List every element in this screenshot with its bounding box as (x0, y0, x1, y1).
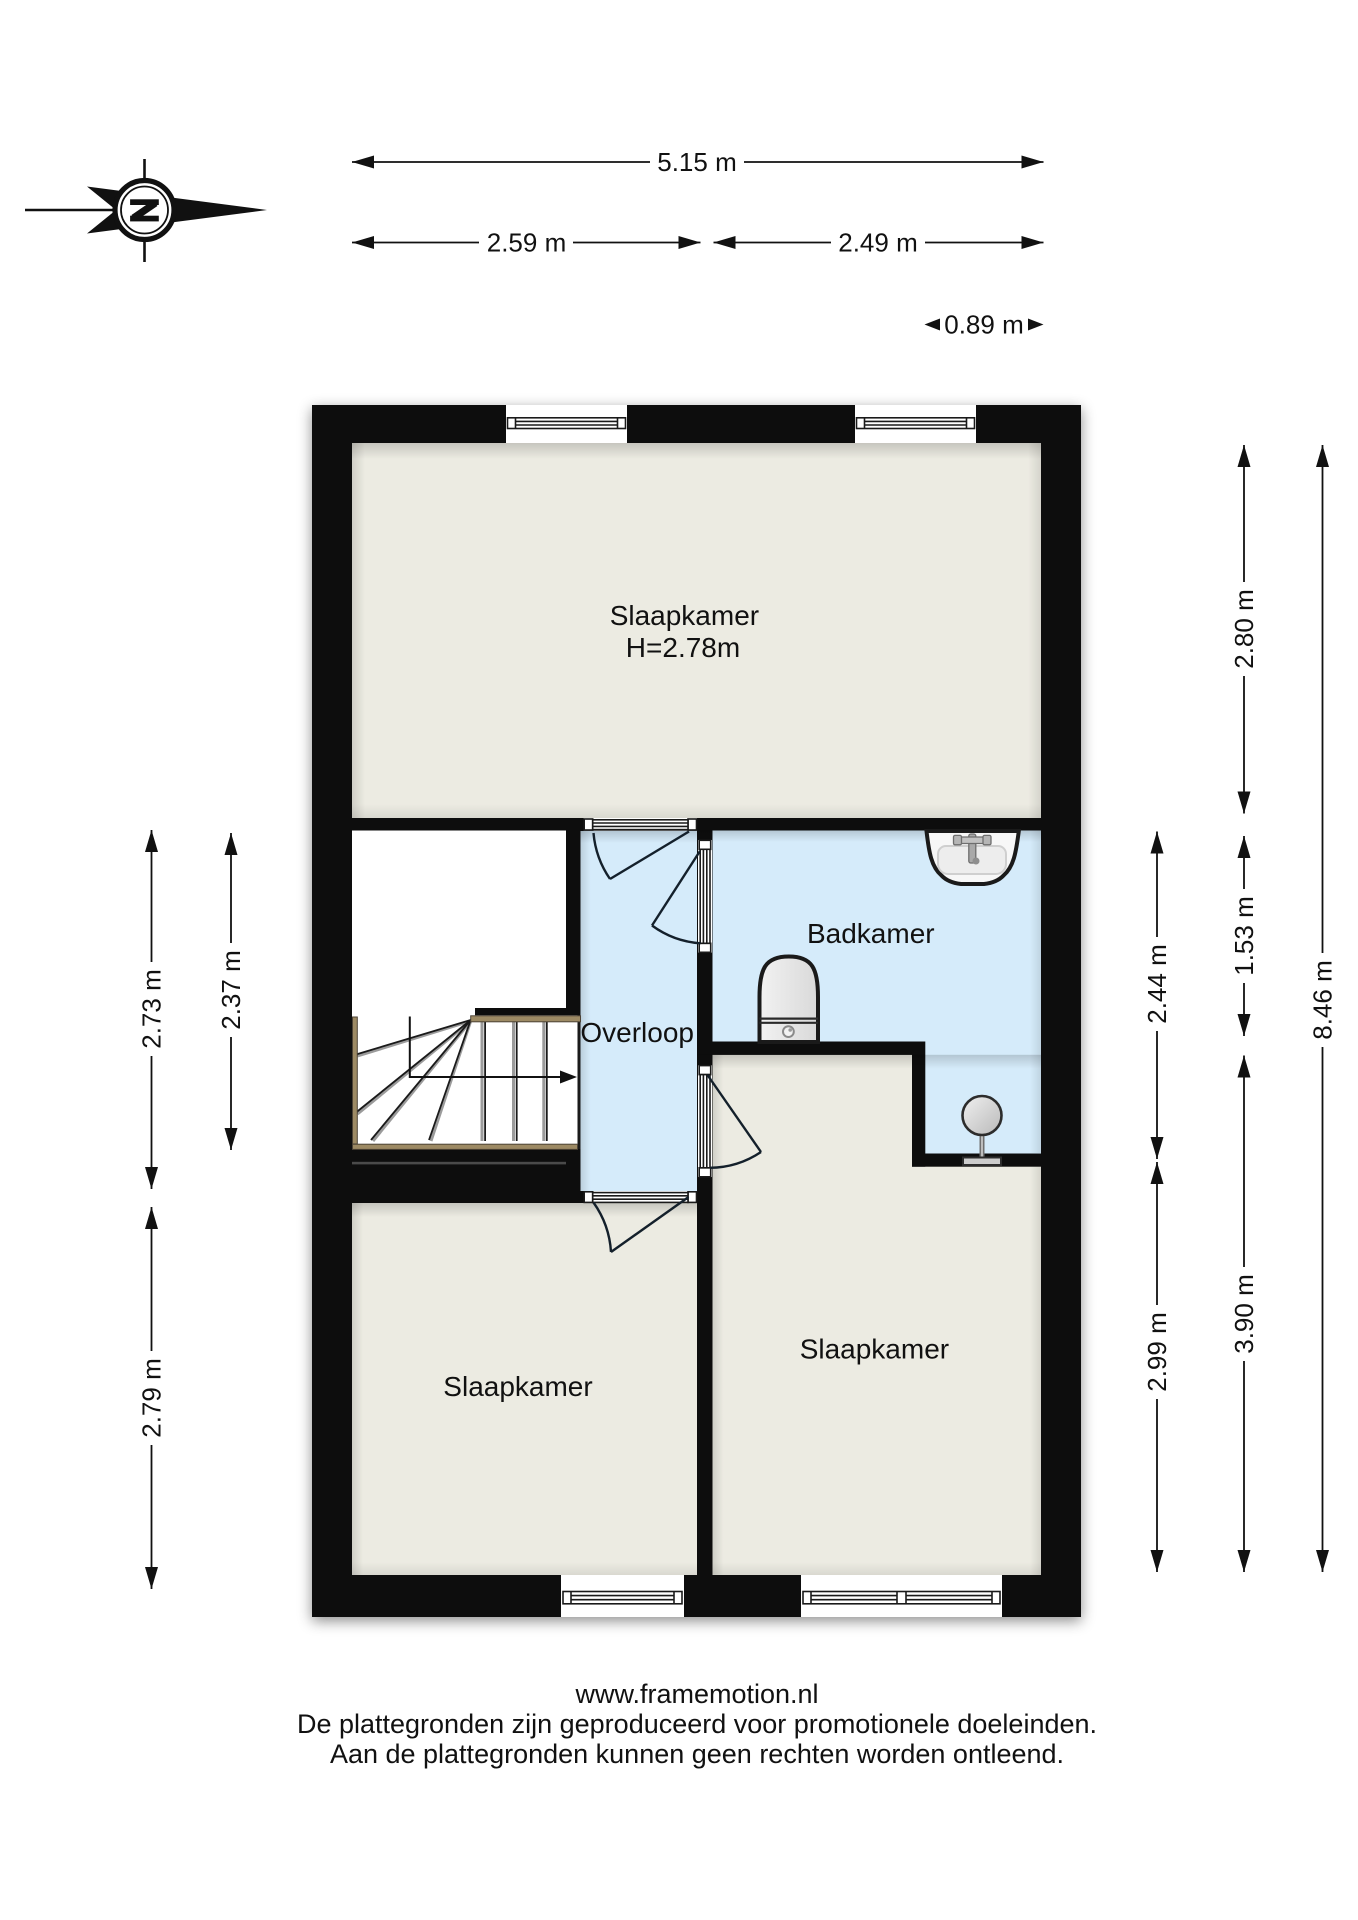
svg-text:www.framemotion.nl: www.framemotion.nl (574, 1679, 818, 1709)
svg-text:0.89 m: 0.89 m (944, 310, 1024, 340)
svg-text:1.53 m: 1.53 m (1229, 896, 1259, 976)
svg-text:2.99 m: 2.99 m (1142, 1312, 1172, 1392)
svg-text:2.79 m: 2.79 m (137, 1358, 167, 1438)
svg-text:Slaapkamer: Slaapkamer (443, 1371, 592, 1402)
svg-text:8.46 m: 8.46 m (1308, 960, 1338, 1040)
svg-text:5.15 m: 5.15 m (657, 147, 737, 177)
svg-text:2.59 m: 2.59 m (487, 228, 567, 258)
svg-text:Aan de plattegronden kunnen ge: Aan de plattegronden kunnen geen rechten… (330, 1739, 1064, 1769)
svg-text:2.37 m: 2.37 m (216, 950, 246, 1030)
svg-text:2.80 m: 2.80 m (1229, 589, 1259, 669)
svg-text:2.73 m: 2.73 m (137, 969, 167, 1049)
svg-text:2.49 m: 2.49 m (838, 228, 918, 258)
svg-text:2.44 m: 2.44 m (1142, 944, 1172, 1024)
svg-text:Badkamer: Badkamer (807, 918, 935, 949)
svg-text:De plattegronden zijn geproduc: De plattegronden zijn geproduceerd voor … (297, 1709, 1097, 1739)
svg-text:Overloop: Overloop (580, 1017, 694, 1048)
svg-text:3.90 m: 3.90 m (1229, 1274, 1259, 1354)
svg-text:Slaapkamer: Slaapkamer (800, 1334, 949, 1365)
svg-text:Slaapkamer: Slaapkamer (610, 600, 759, 631)
svg-text:H=2.78m: H=2.78m (626, 632, 740, 663)
